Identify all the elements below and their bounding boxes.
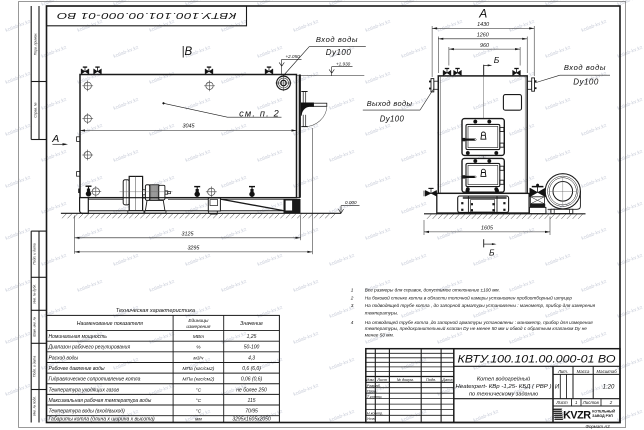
svg-text:Номинальная мощность: Номинальная мощность bbox=[49, 334, 108, 340]
svg-text:Максимальная рабочая температу: Максимальная рабочая температура воды bbox=[49, 398, 152, 404]
svg-text:Справ. №: Справ. № bbox=[34, 102, 38, 118]
svg-text:МВт: МВт bbox=[193, 334, 204, 340]
svg-text:2: 2 bbox=[350, 295, 354, 300]
svg-text:3295х1605х2050: 3295х1605х2050 bbox=[232, 417, 271, 423]
svg-text:Масштаб: Масштаб bbox=[597, 369, 618, 374]
svg-text:МПа (кгс/см2): МПа (кгс/см2) bbox=[182, 366, 214, 372]
svg-text:Диапазон рабочего регулировани: Диапазон рабочего регулирования bbox=[48, 345, 131, 351]
svg-text:1:20: 1:20 bbox=[603, 385, 615, 391]
svg-text:4: 4 bbox=[351, 320, 354, 325]
svg-text:менее 50 мм.: менее 50 мм. bbox=[365, 332, 394, 337]
svg-text:Инв. № дубл.: Инв. № дубл. bbox=[32, 284, 36, 304]
svg-text:Инв. № подл.: Инв. № подл. bbox=[32, 396, 36, 416]
svg-text:1: 1 bbox=[351, 288, 354, 293]
svg-text:№ докум.: № докум. bbox=[397, 377, 414, 382]
svg-text:Рабочее давление воды: Рабочее давление воды bbox=[49, 366, 105, 372]
svg-text:На отводящей трубе котла ,до з: На отводящей трубе котла ,до запорной ар… bbox=[365, 319, 593, 325]
svg-text:°С: °С bbox=[196, 398, 202, 404]
svg-text:Вход воды: Вход воды bbox=[564, 63, 606, 72]
svg-text:1,25: 1,25 bbox=[247, 334, 257, 340]
svg-text:1260: 1260 bbox=[477, 33, 489, 39]
svg-text:3295: 3295 bbox=[187, 246, 200, 252]
svg-text:0,6 (6,0): 0,6 (6,0) bbox=[242, 366, 261, 372]
svg-text:Dy100: Dy100 bbox=[380, 114, 405, 123]
svg-text:%: % bbox=[196, 345, 201, 351]
svg-text:Изм.: Изм. bbox=[366, 377, 374, 382]
svg-text:Пров.: Пров. bbox=[367, 388, 377, 393]
svg-text:Дата: Дата bbox=[441, 377, 453, 382]
svg-text:Б: Б bbox=[489, 247, 495, 257]
svg-text:На боковой стенке котла в обла: На боковой стенке котла в области топочн… bbox=[365, 294, 573, 300]
svg-text:КВТУ.100.101.00.000-01 ВО: КВТУ.100.101.00.000-01 ВО bbox=[458, 353, 616, 365]
svg-text:+2.050: +2.050 bbox=[286, 54, 301, 59]
svg-text:Вход воды: Вход воды bbox=[316, 35, 358, 44]
svg-text:измерения: измерения bbox=[186, 325, 210, 330]
svg-text:Выход воды: Выход воды bbox=[367, 99, 413, 108]
svg-text:Лист: Лист bbox=[376, 377, 388, 382]
svg-text:Dy100: Dy100 bbox=[326, 48, 352, 57]
svg-text:КВТУ.100.101.00.000-01 ВО: КВТУ.100.101.00.000-01 ВО bbox=[56, 11, 237, 20]
svg-text:КОТЕЛЬНЫЙ: КОТЕЛЬНЫЙ bbox=[592, 409, 615, 413]
svg-text:Heatexpert- КВр -1,25- КБД ( Р: Heatexpert- КВр -1,25- КБД ( РВР ) bbox=[456, 384, 552, 390]
svg-text:Масса: Масса bbox=[577, 369, 590, 374]
svg-text:°С: °С bbox=[196, 409, 202, 415]
svg-text:Котел водогрейный: Котел водогрейный bbox=[477, 375, 530, 382]
svg-text:50-100: 50-100 bbox=[244, 345, 260, 351]
svg-text:Утв.: Утв. bbox=[367, 416, 376, 421]
svg-text:Разраб.: Разраб. bbox=[367, 383, 381, 388]
svg-text:Лит.: Лит. bbox=[557, 369, 568, 374]
svg-text:115: 115 bbox=[248, 398, 256, 404]
svg-text:3125: 3125 bbox=[182, 232, 195, 238]
svg-text:KVZR: KVZR bbox=[563, 409, 591, 421]
svg-text:Листов: Листов bbox=[582, 400, 600, 405]
svg-text:Все размеры для справок, допус: Все размеры для справок, допустимое откл… bbox=[365, 288, 500, 293]
svg-text:Наименование показателя: Наименование показателя bbox=[77, 321, 143, 327]
svg-text:м3/ч: м3/ч bbox=[193, 355, 203, 361]
svg-text:Единицы: Единицы bbox=[188, 318, 209, 324]
svg-text:960: 960 bbox=[480, 43, 489, 49]
svg-text:не более 250: не более 250 bbox=[236, 387, 267, 393]
svg-text:Т.контр.: Т.контр. bbox=[367, 394, 383, 399]
svg-text:МПа (кгс/см2): МПа (кгс/см2) bbox=[182, 377, 214, 383]
svg-text:В: В bbox=[184, 46, 192, 58]
svg-text:Температура воды (вход/выход): Температура воды (вход/выход) bbox=[49, 409, 126, 415]
svg-text:Подп. и дата: Подп. и дата bbox=[32, 243, 36, 264]
svg-text:0.000: 0.000 bbox=[345, 200, 357, 205]
svg-text:Лист: Лист bbox=[555, 400, 568, 405]
svg-text:Подп. и дата: Подп. и дата bbox=[32, 356, 36, 377]
svg-text:+1.930: +1.930 bbox=[336, 61, 351, 66]
svg-text:3: 3 bbox=[351, 303, 354, 308]
svg-text:Значение: Значение bbox=[240, 321, 263, 327]
svg-text:4,3: 4,3 bbox=[248, 355, 255, 361]
svg-text:Температура уходящих газов: Температура уходящих газов bbox=[49, 387, 120, 393]
svg-text:Подп.: Подп. bbox=[426, 377, 436, 382]
svg-text:Н.контр.: Н.контр. bbox=[367, 410, 383, 415]
svg-text:ЗАВОД РЭП: ЗАВОД РЭП bbox=[592, 414, 613, 418]
svg-text:температуры, предохранительный: температуры, предохранительный клапан Dу… bbox=[365, 325, 587, 331]
svg-text:Взам. инв. №: Взам. инв. № bbox=[32, 316, 36, 336]
svg-text:2: 2 bbox=[609, 400, 613, 405]
svg-text:1430: 1430 bbox=[477, 22, 489, 28]
svg-text:Формат А3: Формат А3 bbox=[585, 424, 610, 429]
svg-text:по техническому заданию: по техническому заданию bbox=[469, 391, 539, 397]
svg-text:И: И bbox=[555, 385, 560, 391]
svg-text:температуры.: температуры. bbox=[365, 310, 399, 315]
svg-text:Dy100: Dy100 bbox=[573, 78, 599, 87]
svg-text:70/95: 70/95 bbox=[245, 409, 258, 415]
svg-text:0,06 (0,6): 0,06 (0,6) bbox=[241, 377, 263, 383]
svg-text:мм: мм bbox=[195, 418, 202, 423]
svg-text:На подводящей трубе котла ,: На подводящей трубе котла , до запорной … bbox=[365, 302, 596, 308]
svg-text:Техническая характеристика: Техническая характеристика bbox=[116, 308, 195, 314]
svg-text:Расход воды: Расход воды bbox=[49, 355, 79, 361]
svg-text:А: А bbox=[478, 6, 487, 20]
svg-text:Габариты котла (длина х ширина: Габариты котла (длина х ширина х высота) bbox=[49, 417, 156, 423]
svg-text:°С: °С bbox=[196, 387, 202, 393]
svg-text:Гидравлическое сопротивление к: Гидравлическое сопротивление котла bbox=[49, 377, 141, 383]
svg-text:Перв. примен.: Перв. примен. bbox=[34, 33, 38, 56]
svg-text:см. п. 2: см. п. 2 bbox=[239, 108, 280, 118]
svg-text:А: А bbox=[51, 133, 59, 145]
svg-text:3045: 3045 bbox=[183, 124, 196, 130]
svg-text:Б: Б bbox=[494, 55, 500, 65]
svg-text:1605: 1605 bbox=[481, 226, 494, 232]
